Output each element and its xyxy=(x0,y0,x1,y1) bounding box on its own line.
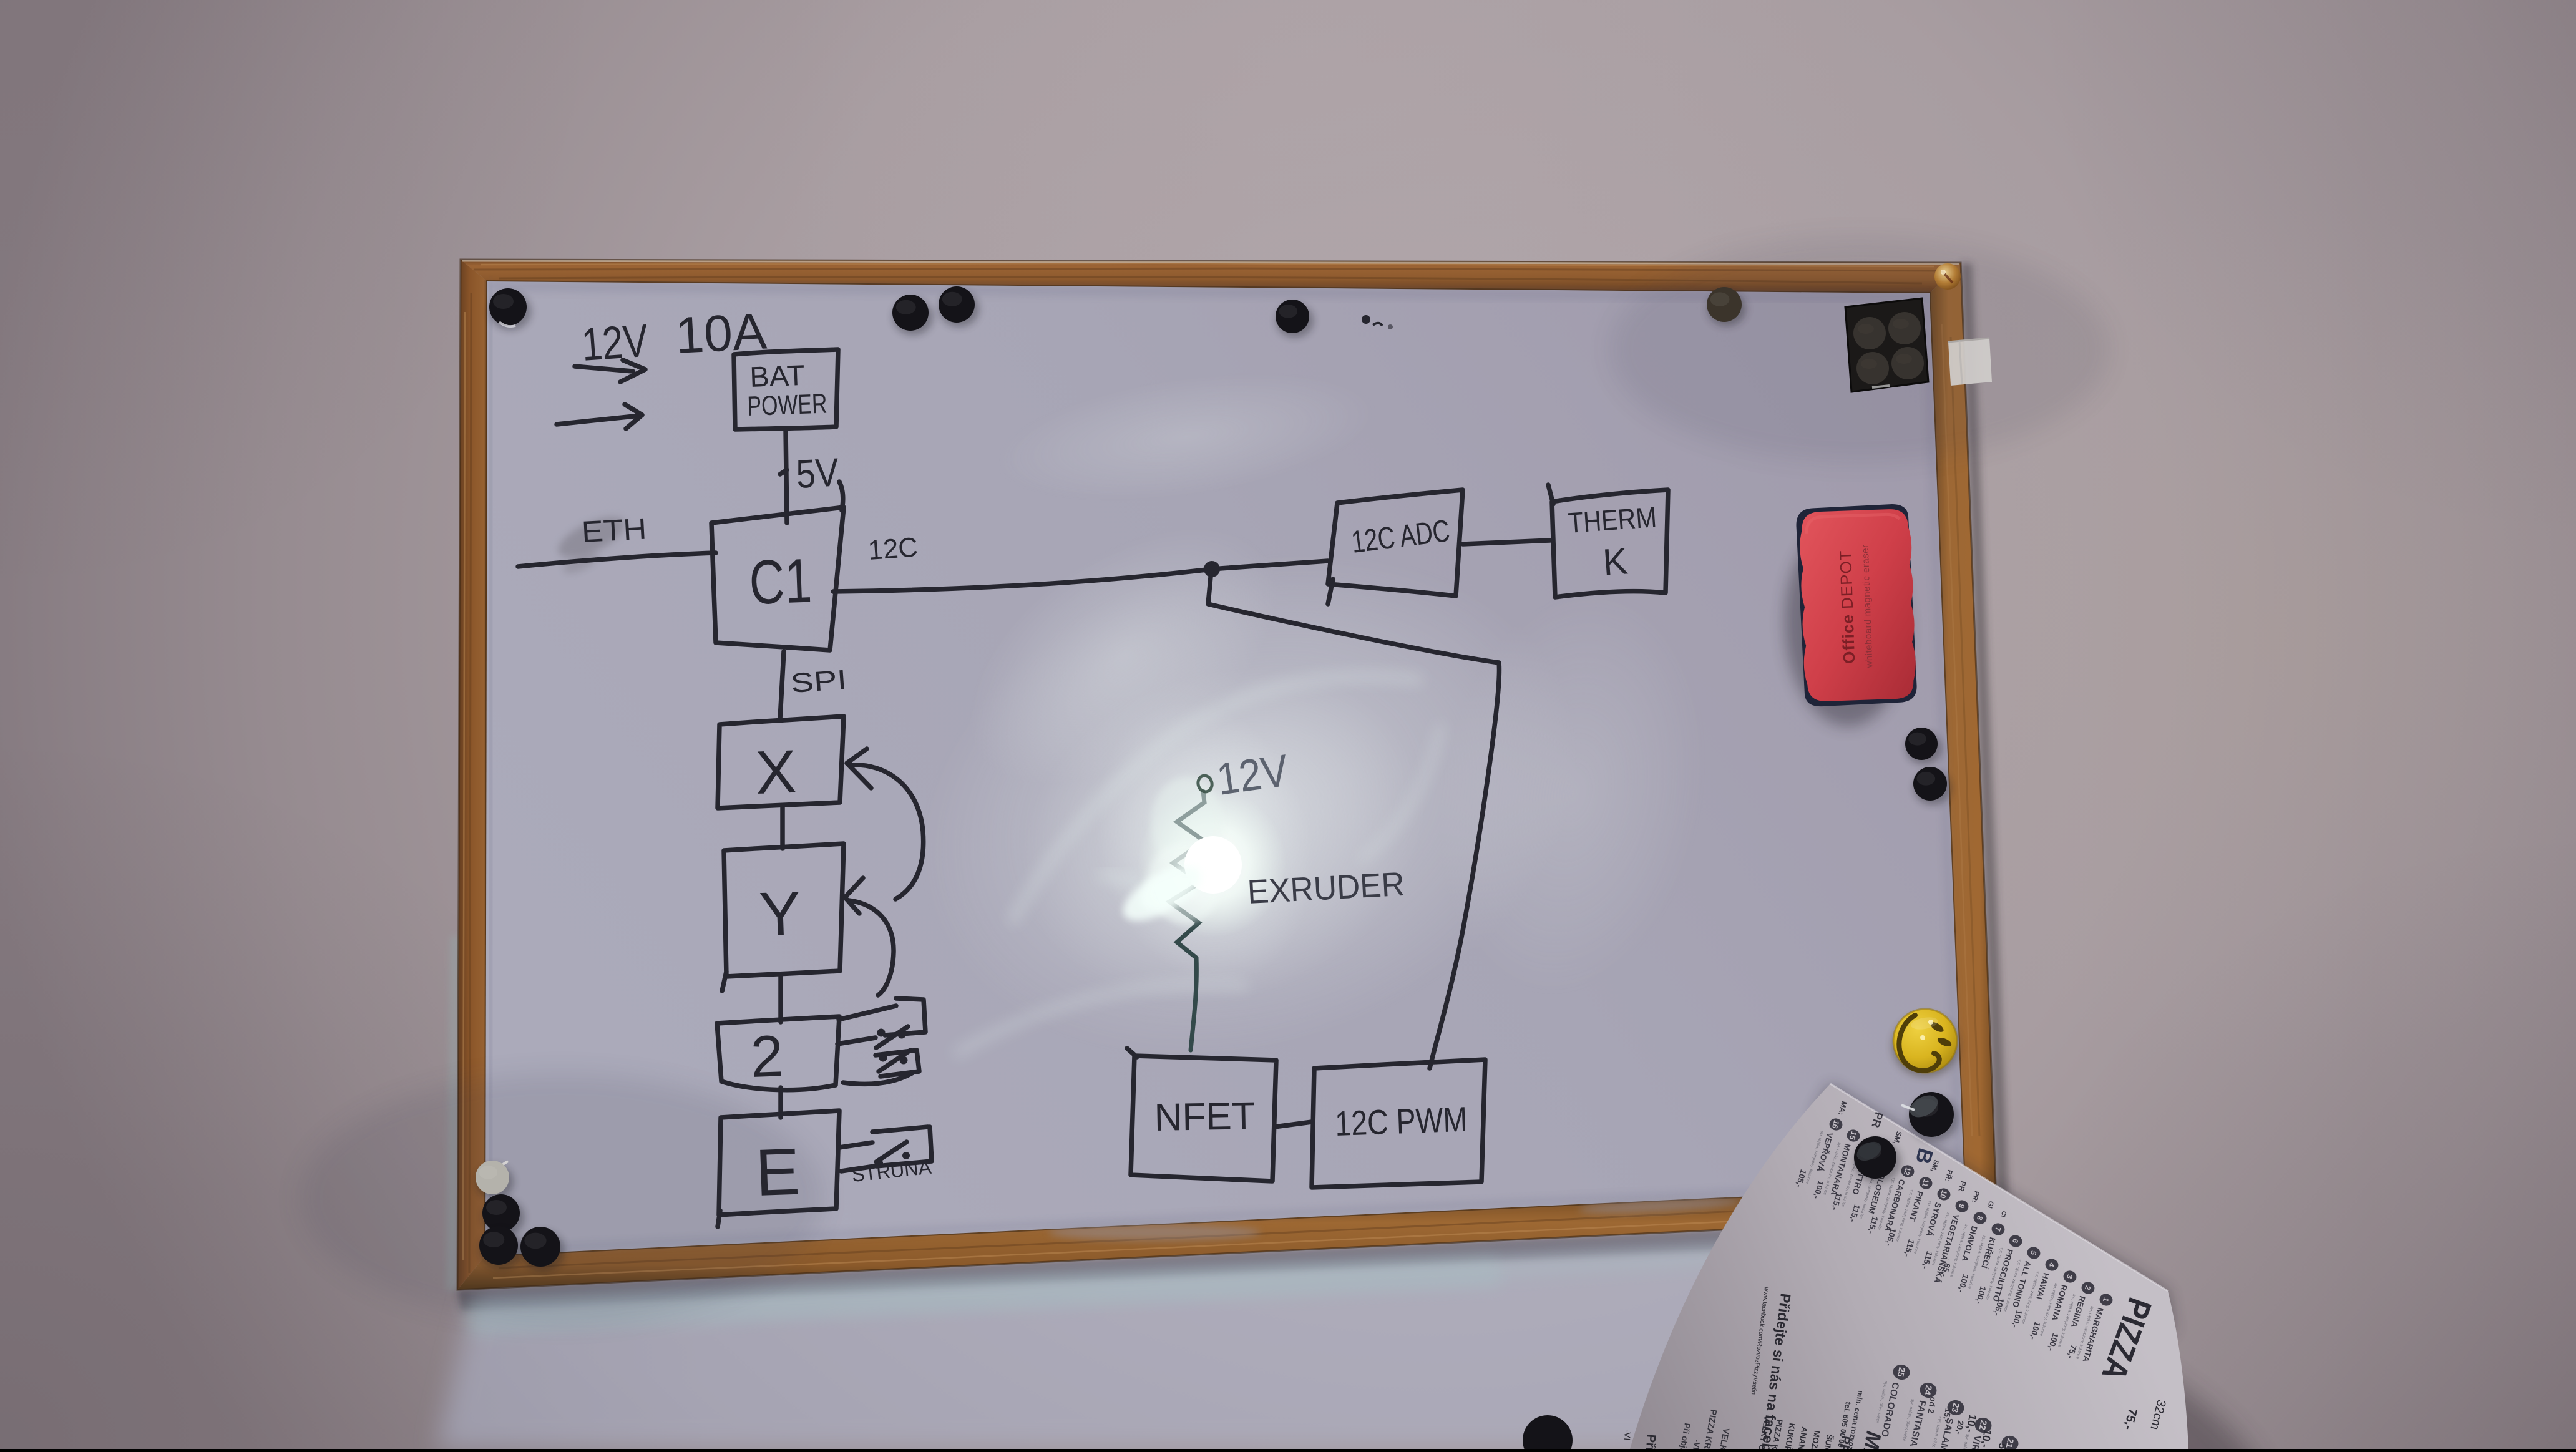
svg-text:ETH: ETH xyxy=(581,513,648,549)
svg-text:10A: 10A xyxy=(674,303,768,364)
svg-text:Při: Při xyxy=(1643,1434,1658,1449)
svg-text:BAT: BAT xyxy=(749,359,806,393)
svg-text:12C: 12C xyxy=(867,532,919,566)
svg-text:X: X xyxy=(754,737,799,807)
svg-text:POWER: POWER xyxy=(747,389,828,422)
svg-text:Y: Y xyxy=(758,879,804,950)
svg-text:12V: 12V xyxy=(1214,746,1291,805)
svg-text:SPI: SPI xyxy=(789,665,847,699)
svg-text:12V: 12V xyxy=(580,314,650,371)
svg-text:2: 2 xyxy=(749,1023,786,1089)
svg-text:C1: C1 xyxy=(748,546,813,618)
svg-text:Office DEPOT: Office DEPOT xyxy=(1836,550,1858,664)
svg-text:12C PWM: 12C PWM xyxy=(1334,1099,1468,1143)
svg-text:E: E xyxy=(754,1135,803,1210)
svg-text:NFET: NFET xyxy=(1154,1094,1256,1139)
svg-text:-VI: -VI xyxy=(1622,1429,1632,1441)
svg-text:THERM: THERM xyxy=(1567,500,1657,539)
svg-text:K: K xyxy=(1601,540,1631,583)
svg-text:5V: 5V xyxy=(795,450,840,497)
